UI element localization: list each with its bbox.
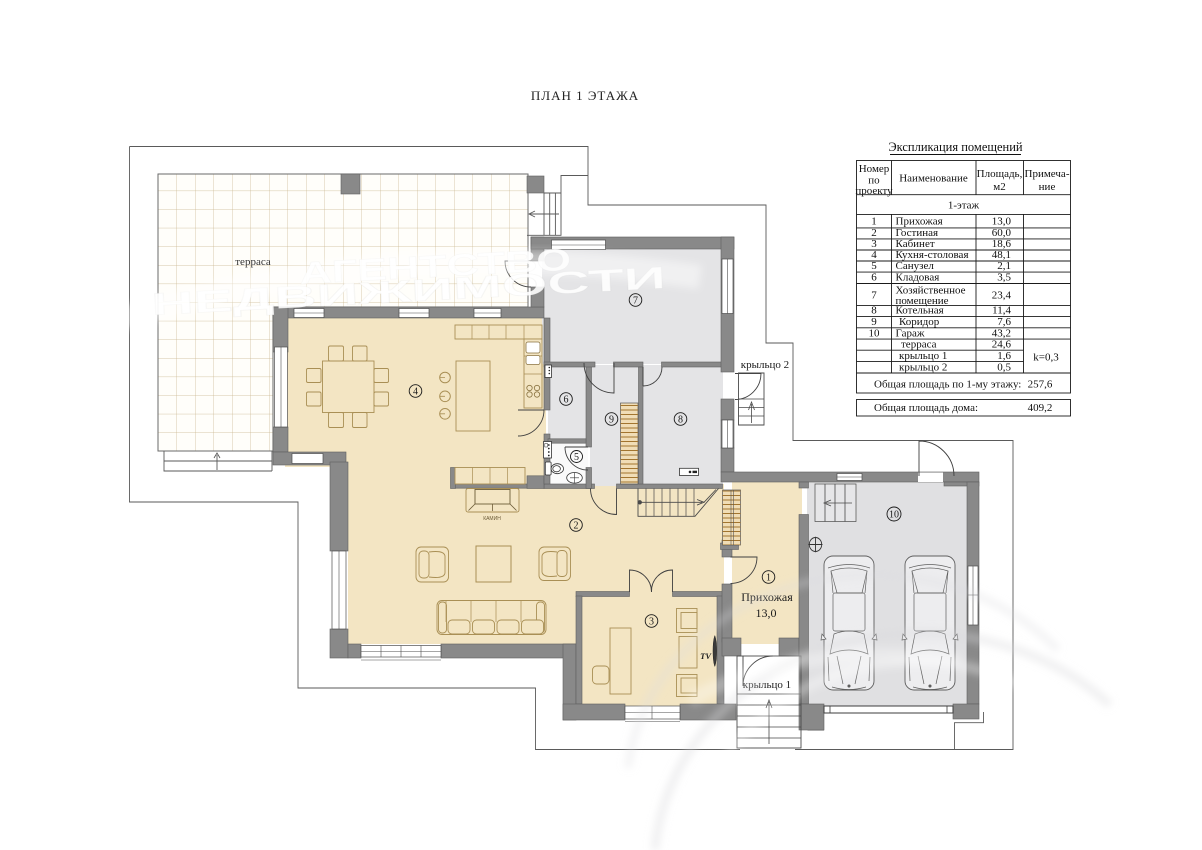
- svg-text:409,2: 409,2: [1028, 402, 1053, 414]
- svg-text:Площадь,: Площадь,: [977, 168, 1023, 180]
- svg-text:6: 6: [564, 395, 569, 406]
- svg-text:1: 1: [766, 573, 771, 584]
- svg-text:13,0: 13,0: [756, 606, 777, 620]
- svg-text:7: 7: [871, 290, 877, 302]
- svg-text:0,5: 0,5: [997, 361, 1011, 373]
- svg-text:Гостиная: Гостиная: [896, 227, 939, 239]
- svg-text:крыльцо 1: крыльцо 1: [899, 350, 947, 362]
- svg-text:9: 9: [871, 316, 877, 328]
- svg-text:КАМИН: КАМИН: [483, 516, 501, 522]
- svg-text:Кухня-столовая: Кухня-столовая: [896, 249, 969, 261]
- svg-text:7,6: 7,6: [997, 316, 1011, 328]
- svg-text:крыльцо 2: крыльцо 2: [899, 361, 947, 373]
- svg-text:48,1: 48,1: [992, 249, 1011, 261]
- svg-text:Котельная: Котельная: [896, 305, 944, 317]
- svg-text:ние: ние: [1039, 181, 1056, 193]
- svg-text:13,0: 13,0: [992, 216, 1012, 228]
- svg-text:5: 5: [574, 452, 579, 463]
- svg-text:1-этаж: 1-этаж: [948, 200, 980, 212]
- svg-text:9: 9: [609, 415, 614, 426]
- svg-text:терраса: терраса: [235, 256, 271, 268]
- svg-text:10: 10: [889, 510, 899, 521]
- svg-text:60,0: 60,0: [992, 227, 1012, 239]
- svg-text:Номер: Номер: [859, 163, 890, 175]
- svg-text:3,5: 3,5: [997, 272, 1011, 284]
- svg-text:Наименование: Наименование: [899, 173, 968, 185]
- svg-text:10: 10: [869, 327, 881, 339]
- svg-text:Общая площадь дома:: Общая площадь дома:: [874, 402, 978, 414]
- svg-text:4: 4: [871, 249, 877, 261]
- svg-text:крыльцо 2: крыльцо 2: [741, 359, 789, 371]
- svg-text:8: 8: [678, 415, 683, 426]
- svg-text:Прихожая: Прихожая: [896, 216, 943, 228]
- svg-text:11,4: 11,4: [992, 305, 1011, 317]
- svg-text:Кладовая: Кладовая: [896, 272, 940, 284]
- svg-text:7: 7: [633, 296, 638, 307]
- svg-text:4: 4: [413, 387, 418, 398]
- svg-text:3: 3: [649, 617, 654, 628]
- svg-text:43,2: 43,2: [992, 327, 1011, 339]
- svg-text:ПЛАН 1 ЭТАЖА: ПЛАН 1 ЭТАЖА: [531, 88, 639, 103]
- svg-text:TV: TV: [700, 651, 712, 661]
- svg-text:терраса: терраса: [901, 339, 937, 351]
- svg-text:м2: м2: [993, 181, 1005, 193]
- svg-text:Санузел: Санузел: [896, 260, 935, 272]
- svg-text:Коридор: Коридор: [899, 316, 940, 328]
- svg-text:257,6: 257,6: [1028, 379, 1053, 391]
- svg-text:5: 5: [871, 260, 877, 272]
- svg-text:1,6: 1,6: [997, 350, 1011, 362]
- svg-text:Примеча-: Примеча-: [1025, 168, 1070, 180]
- svg-text:2: 2: [574, 521, 579, 532]
- svg-text:24,6: 24,6: [992, 339, 1012, 351]
- svg-text:1: 1: [871, 216, 877, 228]
- svg-text:Гараж: Гараж: [896, 327, 925, 339]
- svg-text:6: 6: [871, 272, 877, 284]
- svg-text:2: 2: [871, 227, 877, 239]
- svg-text:проекту: проекту: [855, 185, 893, 197]
- svg-text:2,1: 2,1: [997, 260, 1011, 272]
- svg-text:Общая площадь по 1-му этажу:: Общая площадь по 1-му этажу:: [874, 379, 1021, 391]
- svg-text:Экспликация помещений: Экспликация помещений: [888, 140, 1023, 154]
- svg-text:8: 8: [871, 305, 877, 317]
- svg-text:k=0,3: k=0,3: [1033, 352, 1059, 364]
- svg-text:23,4: 23,4: [992, 290, 1012, 302]
